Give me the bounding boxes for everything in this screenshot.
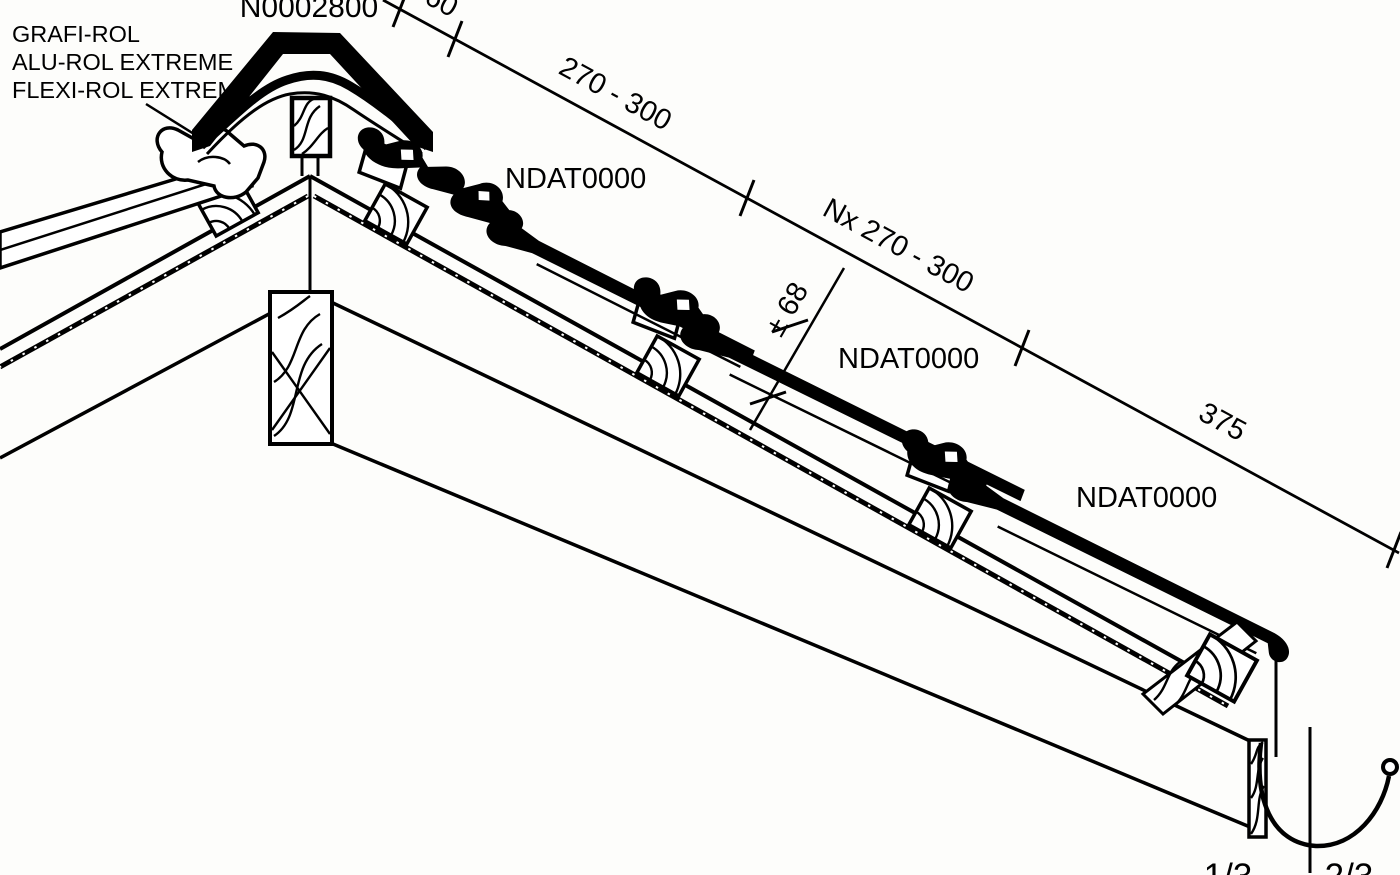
technical-drawing-roof-section: 60 270 - 300 Nx 270 - 300 375 ± 68 N0002… [0,0,1400,875]
dimension-chain: 60 270 - 300 Nx 270 - 300 375 [383,0,1400,568]
eave-fraction-left-label: 1/3 [1204,857,1253,875]
sheathing-top-right [310,176,1240,694]
eave-fraction-right-label: 2/3 [1325,857,1374,875]
ridge-batten [292,98,330,176]
roof-structure-lines [0,176,1250,827]
dim-tick-4 [1387,532,1400,568]
product-label-2: ALU-ROL EXTREME [12,49,233,75]
product-label-1: GRAFI-ROL [12,21,140,47]
dim-tick-2 [740,180,754,216]
rafter-top-right [310,292,1250,741]
gutter-bead [1383,760,1397,774]
ridge-board [270,292,332,444]
dim-tick-1 [448,21,462,57]
tile-code-label-3: NDAT0000 [1076,482,1217,514]
fascia-board [1249,740,1266,837]
dim-ridge-offset: 60 [419,0,463,24]
tile-code-label-1: NDAT0000 [505,163,646,195]
product-label-3: FLEXI-ROL EXTREME [12,77,253,103]
dim-eave-course: 375 [1193,396,1251,447]
ridge-cap-code-label: N0002800 [240,0,378,24]
dim-tick-3 [1015,330,1029,366]
left-roof-tile [0,128,265,268]
gutter [1260,743,1397,846]
dim-field-courses: Nx 270 - 300 [818,192,979,299]
tile-code-label-2: NDAT0000 [838,343,979,375]
sarking-membrane-right [314,196,1228,706]
dim-top-course: 270 - 300 [554,51,677,138]
rafter-top-left [0,292,310,458]
drawing-svg: 60 270 - 300 Nx 270 - 300 375 ± 68 N0002… [0,0,1400,875]
